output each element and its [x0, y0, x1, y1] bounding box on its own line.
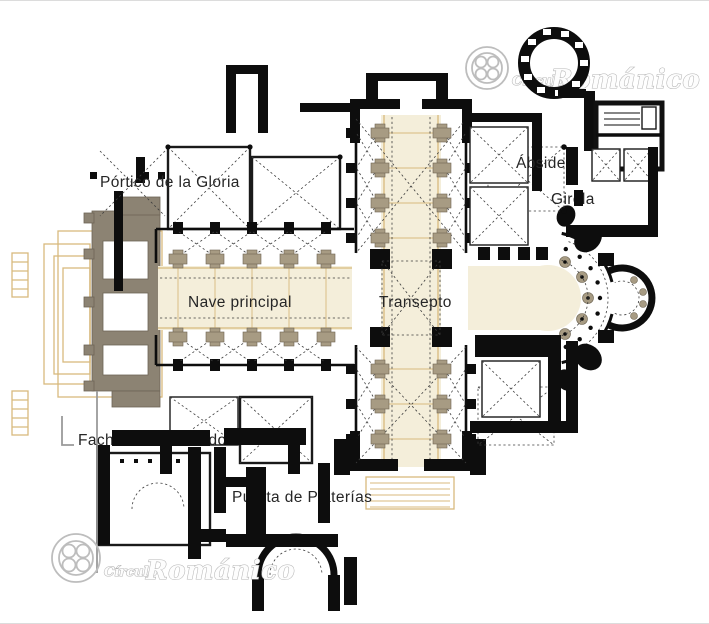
label-abside: Ábside — [516, 155, 566, 172]
fachada-bracket — [62, 416, 74, 445]
plan-drawing — [12, 29, 662, 611]
north-chapels — [165, 65, 356, 229]
label-girola: Girola — [551, 191, 595, 208]
watermark-name-bottom: Románico — [145, 556, 295, 586]
northeast-annex — [462, 113, 542, 245]
circulo-romanico-logo-icon — [52, 534, 100, 582]
cathedral-floor-plan: Círculo Románico — [0, 1, 709, 624]
label-portico: Pórtico de la Gloria — [100, 174, 240, 191]
label-nave: Nave principal — [188, 294, 292, 311]
transept — [334, 73, 486, 509]
circulo-romanico-logo-icon — [466, 47, 508, 89]
label-transepto: Transepto — [379, 294, 452, 311]
west-towers-block — [84, 191, 160, 407]
southeast-annex — [470, 335, 566, 433]
cathedral-plan-page: Círculo Románico — [0, 0, 709, 624]
